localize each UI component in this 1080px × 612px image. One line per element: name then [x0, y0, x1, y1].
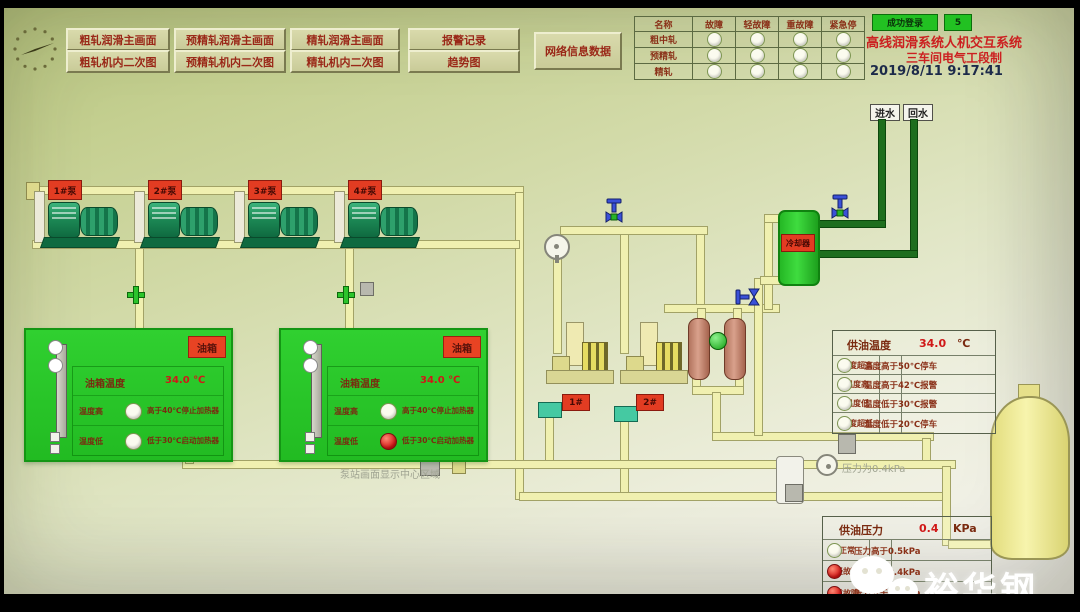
pump-inlet-pipe — [134, 191, 145, 243]
brand-watermark: 裕华钢铁 — [924, 562, 1074, 594]
supply-temp-title: 供油温度 — [847, 337, 891, 353]
pump-base — [340, 237, 420, 248]
nav-rough-mill-main[interactable]: 粗轧润滑主画面 — [66, 28, 170, 51]
frame-edge — [0, 0, 1080, 8]
tank-row-label: 温度低 — [334, 436, 358, 447]
water-pipe — [878, 119, 886, 227]
datetime: 2019/8/11 9:17:41 — [870, 64, 1003, 79]
frame-edge — [1074, 0, 1080, 612]
supply-temp-row-desc: 温度高于50℃停车 — [864, 360, 937, 372]
status-indicator — [793, 48, 808, 63]
supply-temp-indicator — [837, 358, 852, 373]
status-row-label: 精轧 — [635, 64, 693, 80]
tank-row-desc: 低于30℃启动加热器 — [402, 437, 474, 445]
pump-label: 1#泵 — [48, 180, 82, 200]
temp-low-indicator — [380, 433, 397, 450]
pressure-gauge-icon — [816, 454, 838, 476]
supply-temp-indicator — [837, 377, 852, 392]
nav-prefinish-mill-main[interactable]: 预精轧润滑主画面 — [174, 28, 286, 51]
filter-block — [656, 342, 682, 372]
pump-inlet-pipe — [234, 191, 245, 243]
duplex-filter-cylinder[interactable] — [688, 318, 710, 380]
filter-status-ball — [709, 332, 727, 350]
oil-pump-unit[interactable] — [32, 198, 118, 248]
status-indicator — [750, 48, 765, 63]
supply-temp-row-desc: 温度低于20℃停车 — [864, 418, 937, 430]
status-indicator — [707, 32, 722, 47]
status-indicator — [707, 48, 722, 63]
panel-switch[interactable] — [50, 432, 60, 442]
supply-temp-indicator — [837, 396, 852, 411]
pressure-indicator — [827, 564, 842, 579]
water-pipe — [816, 250, 918, 258]
hmi-screenshot: 粗轧润滑主画面 粗轧机内二次图 预精轧润滑主画面 预精轧机内二次图 精轧润滑主画… — [0, 0, 1080, 612]
pump-label: 4#泵 — [348, 180, 382, 200]
status-indicator — [750, 32, 765, 47]
status-row-label: 预精轧 — [635, 48, 693, 64]
tank-temp-label: 油箱温度 — [340, 375, 380, 390]
filter-block — [582, 342, 608, 372]
supply-temp-value: 34.0 — [919, 337, 946, 350]
pipe-segment — [553, 258, 562, 354]
panel-switch[interactable] — [305, 432, 315, 442]
supply-pressure-title: 供油压力 — [839, 522, 883, 538]
pump-label: 3#泵 — [248, 180, 282, 200]
pump-base — [40, 237, 120, 248]
status-indicator — [836, 48, 851, 63]
status-indicator — [836, 32, 851, 47]
oil-storage-tank[interactable] — [990, 396, 1070, 560]
pipe-fitting — [452, 460, 466, 474]
nav-finish-mill-secondary[interactable]: 精轧机内二次图 — [290, 50, 400, 73]
status-indicator — [836, 64, 851, 79]
supply-temp-indicator — [837, 416, 852, 431]
pump-base — [140, 237, 220, 248]
gauge-stem — [555, 255, 559, 263]
status-indicator — [793, 64, 808, 79]
pressure-indicator — [827, 543, 842, 558]
tank-row-label: 温度高 — [79, 406, 103, 417]
temp-low-indicator — [125, 433, 142, 450]
nav-rough-mill-secondary[interactable]: 粗轧机内二次图 — [66, 50, 170, 73]
valve-icon[interactable] — [604, 198, 624, 232]
pump-body — [380, 207, 418, 236]
center-note: 泵站画面显示中心区域 — [340, 466, 440, 481]
trend-chart-button[interactable]: 趋势图 — [408, 50, 520, 73]
gauge-note: 压力为0.4kPa — [842, 460, 905, 475]
supply-temp-row-desc: 温度高于42℃报警 — [864, 379, 937, 391]
tank-temp-label: 油箱温度 — [85, 375, 125, 390]
pump-motor — [48, 202, 80, 238]
temp-high-indicator — [380, 403, 397, 420]
water-pipe — [910, 119, 918, 257]
oil-pump-unit[interactable] — [332, 198, 418, 248]
water-return-label: 回水 — [903, 104, 933, 121]
count-badge: 5 — [944, 14, 972, 31]
nav-prefinish-mill-secondary[interactable]: 预精轧机内二次图 — [174, 50, 286, 73]
pump-body — [180, 207, 218, 236]
status-header: 紧急停 — [822, 17, 865, 32]
panel-switch[interactable] — [305, 444, 315, 454]
pump-inlet-pipe — [334, 191, 345, 243]
pipe-segment — [620, 414, 629, 498]
level-indicator — [48, 358, 63, 373]
pump-motor — [248, 202, 280, 238]
water-pipe — [816, 220, 886, 228]
supply-pressure-unit: KPa — [953, 522, 977, 535]
login-status-badge: 成功登录 — [872, 14, 938, 31]
status-header: 故障 — [693, 17, 736, 32]
oil-pump-unit[interactable] — [232, 198, 318, 248]
pipe-segment — [560, 226, 708, 235]
supply-temp-unit: ℃ — [957, 337, 970, 350]
pipe-fitting — [360, 282, 374, 296]
mill-status-table: 名称 故障 轻故障 重故障 紧急停 粗中轧 预精轧 精轧 — [634, 16, 865, 80]
pipe-segment — [620, 230, 629, 354]
status-indicator — [750, 64, 765, 79]
status-indicator — [707, 64, 722, 79]
level-indicator — [48, 340, 63, 355]
frame-edge — [0, 594, 1080, 612]
network-data-button[interactable]: 网络信息数据 — [534, 32, 622, 70]
level-indicator — [303, 340, 318, 355]
filter-base — [620, 370, 688, 384]
nav-finish-mill-main[interactable]: 精轧润滑主画面 — [290, 28, 400, 51]
pump-body — [280, 207, 318, 236]
small-valve-icon[interactable] — [785, 484, 803, 502]
status-header: 重故障 — [779, 17, 822, 32]
teal-valve-icon[interactable] — [538, 402, 562, 418]
level-indicator — [303, 358, 318, 373]
pipe-segment — [519, 492, 949, 501]
status-row-label: 粗中轧 — [635, 32, 693, 48]
tank-info-table: 油箱温度 34.0 ℃ 温度高 高于40℃停止加热器 温度低 低于30℃启动加热… — [72, 366, 224, 456]
supply-temp-panel: 供油温度 34.0 ℃ 温度超高 温度高于50℃停车 温度高 温度高于42℃报警… — [832, 330, 996, 434]
clock-icon — [8, 22, 62, 76]
tank-temp-value: 34.0 ℃ — [420, 375, 460, 386]
supply-pressure-value: 0.4 — [919, 522, 939, 535]
duplex-filter-cylinder[interactable] — [724, 318, 746, 380]
tank-row-label: 温度低 — [79, 436, 103, 447]
pipe-segment — [545, 414, 554, 466]
tank-row-desc: 高于40℃停止加热器 — [402, 407, 474, 415]
pressure-row-desc: 压力高于0.5kPa — [854, 545, 920, 557]
temp-high-indicator — [125, 403, 142, 420]
pipe-segment — [696, 234, 705, 310]
filter-base — [546, 370, 614, 384]
tank-row-label: 温度高 — [334, 406, 358, 417]
teal-valve-icon[interactable] — [614, 406, 638, 422]
cooler-label: 冷却器 — [781, 234, 815, 252]
status-header: 轻故障 — [736, 17, 779, 32]
tank-badge: 油箱 — [443, 336, 481, 358]
check-valve-icon[interactable] — [127, 286, 145, 304]
valve-icon[interactable] — [830, 194, 850, 228]
oil-pump-unit[interactable] — [132, 198, 218, 248]
hmi-screen: 粗轧润滑主画面 粗轧机内二次图 预精轧润滑主画面 预精轧机内二次图 精轧润滑主画… — [4, 8, 1074, 594]
pump-motor — [348, 202, 380, 238]
pump-motor — [148, 202, 180, 238]
oil-tank-panel-1: 油箱 油箱温度 34.0 ℃ 温度高 高于40℃停止加热器 温度低 低于30℃启… — [24, 328, 233, 462]
tank-row-desc: 高于40℃停止加热器 — [147, 407, 219, 415]
pump-label: 2#泵 — [148, 180, 182, 200]
panel-switch[interactable] — [50, 444, 60, 454]
pump-inlet-pipe — [34, 191, 45, 243]
tank-temp-value: 34.0 ℃ — [165, 375, 205, 386]
oil-tank-panel-2: 油箱 油箱温度 34.0 ℃ 温度高 高于40℃停止加热器 温度低 低于30℃启… — [279, 328, 488, 462]
tank-row-desc: 低于30℃启动加热器 — [147, 437, 219, 445]
small-valve-icon[interactable] — [838, 434, 856, 454]
pump-body — [80, 207, 118, 236]
valve-icon[interactable] — [735, 287, 769, 307]
frame-edge — [0, 0, 4, 612]
filter-label: 2# — [636, 394, 664, 411]
alarm-records-button[interactable]: 报警记录 — [408, 28, 520, 51]
supply-temp-row-desc: 温度低于30℃报警 — [864, 398, 937, 410]
tank-info-table: 油箱温度 34.0 ℃ 温度高 高于40℃停止加热器 温度低 低于30℃启动加热… — [327, 366, 479, 456]
tank-badge: 油箱 — [188, 336, 226, 358]
check-valve-icon[interactable] — [337, 286, 355, 304]
pipe-segment — [515, 192, 524, 500]
status-header: 名称 — [635, 17, 693, 32]
pump-base — [240, 237, 320, 248]
status-indicator — [793, 32, 808, 47]
filter-label: 1# — [562, 394, 590, 411]
